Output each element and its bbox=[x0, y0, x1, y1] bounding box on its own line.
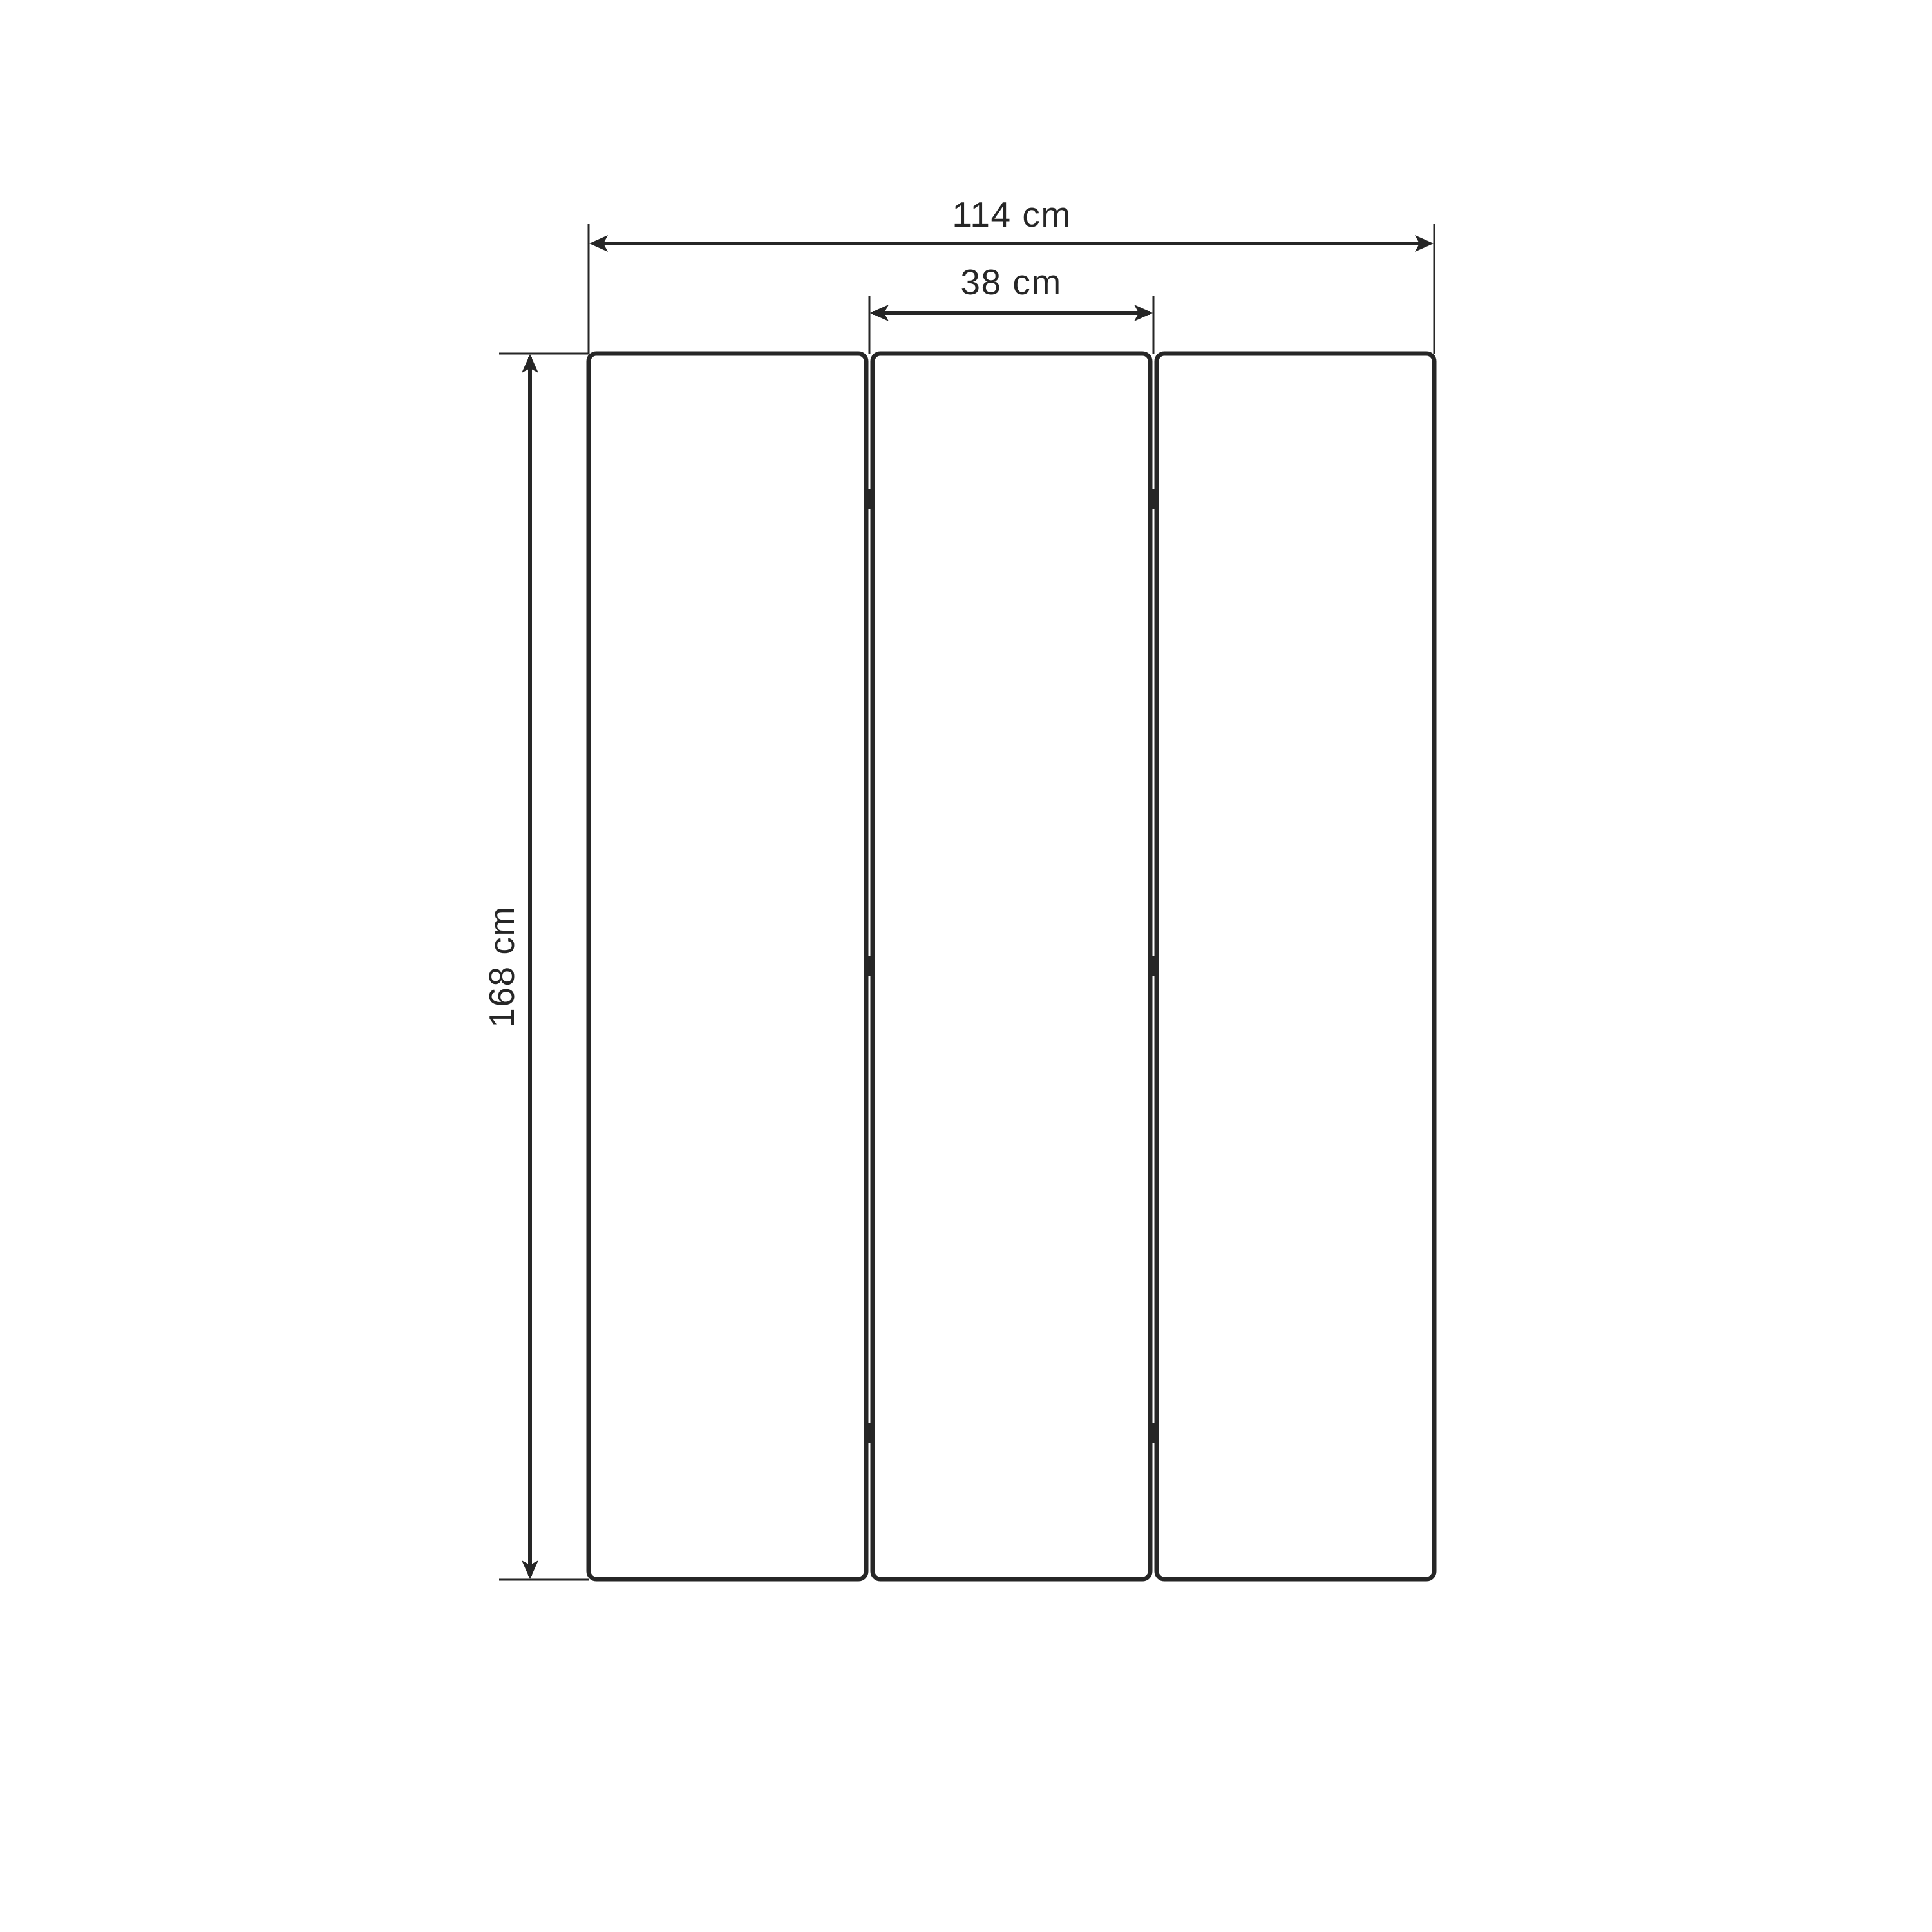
total-width-label: 114 cm bbox=[952, 194, 1071, 234]
panel-middle bbox=[873, 354, 1150, 1579]
hinge-icon bbox=[865, 489, 874, 509]
hinge-icon bbox=[1149, 489, 1158, 509]
panel-right bbox=[1157, 354, 1434, 1579]
panel-width-label: 38 cm bbox=[960, 262, 1061, 302]
hinge-icon bbox=[865, 1423, 874, 1443]
hinge-icon bbox=[1149, 956, 1158, 976]
panel-left bbox=[589, 354, 866, 1579]
panels-group bbox=[589, 354, 1434, 1579]
hinge-icon bbox=[1149, 1423, 1158, 1443]
hinge-icon bbox=[865, 956, 874, 976]
height-label: 168 cm bbox=[482, 905, 522, 1027]
dimension-diagram: 114 cm 38 cm 168 cm bbox=[0, 0, 1932, 1932]
